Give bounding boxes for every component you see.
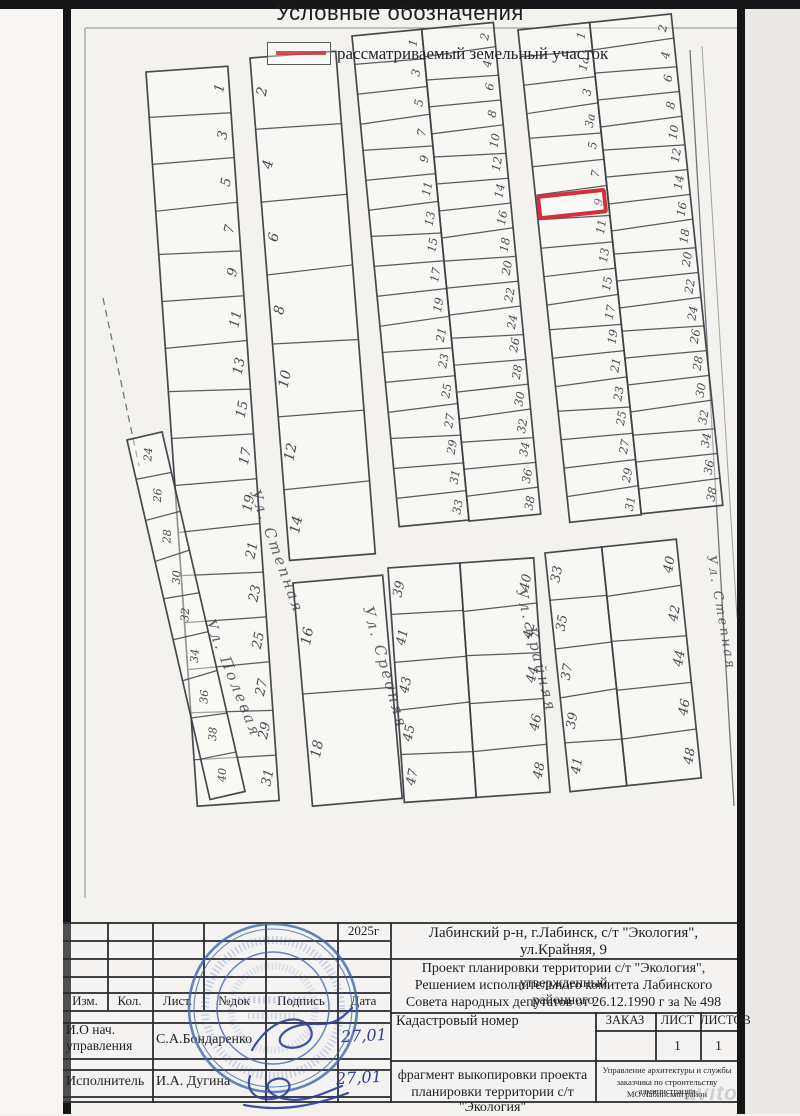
- plot-number: 35: [554, 614, 572, 633]
- sheets-value: 1: [700, 1039, 737, 1054]
- plot-number: 46: [676, 698, 694, 718]
- plot-number: 25: [613, 410, 630, 428]
- cadastral-number-label: Кадастровый номер: [396, 1014, 519, 1030]
- plot-number: 48: [681, 747, 699, 767]
- plot-number: 15: [599, 275, 615, 292]
- plot-number: 19: [430, 296, 446, 313]
- photo-watermark: avito: [684, 1082, 738, 1106]
- plot-number: 26: [506, 336, 523, 354]
- plot-number: 3а: [582, 112, 598, 129]
- col-header-izm: Изм.: [63, 994, 107, 1008]
- plot-number: 23: [435, 352, 452, 370]
- plot-number: 32: [178, 607, 192, 622]
- title-block: 2025г Лабинский р-н, г.Лабинск, с/т "Эко…: [63, 922, 737, 1103]
- plot-number: 20: [679, 251, 696, 269]
- col-header-podpis: Подпись: [265, 994, 337, 1008]
- plot-number: 27: [616, 438, 633, 456]
- title-block-line: [152, 922, 154, 1103]
- plot-number: 27: [441, 412, 458, 431]
- sheet-value: 1: [655, 1039, 700, 1054]
- title-block-line: [63, 1010, 390, 1012]
- plot-number: 28: [509, 363, 526, 381]
- plot-number: 44: [671, 649, 689, 669]
- plot-number: 19: [604, 328, 620, 345]
- plot-strip: 33353739414042444648: [545, 539, 702, 792]
- org-line1: Управление архитектуры и службы: [597, 1066, 737, 1075]
- plot-number: 33: [548, 565, 566, 584]
- doc-title-line2: планировки территории с/т "Экология": [390, 1085, 595, 1116]
- plot-number: 20: [499, 259, 516, 277]
- plot-number: 29: [443, 438, 460, 456]
- plot-number: 36: [701, 459, 717, 476]
- plot-number: 31: [447, 468, 463, 485]
- plot-number: 30: [693, 382, 709, 399]
- plot-number: 11: [419, 180, 435, 197]
- plot-number: 30: [511, 390, 527, 407]
- plot-number: 13: [422, 210, 438, 227]
- plot-number: 22: [501, 286, 518, 304]
- plot-number: 11: [593, 218, 609, 235]
- col-header-ndok: №док: [203, 994, 265, 1008]
- sheet-header: ЛИСТ: [655, 1014, 700, 1028]
- signature2-date: 27,01: [336, 1068, 383, 1088]
- plot-number: 16: [673, 201, 689, 218]
- plot-number: 10: [665, 124, 681, 141]
- right-road-line-2: [702, 46, 737, 618]
- plot-number: 38: [206, 727, 220, 742]
- legend-item: рассматриваемый земельный участок: [267, 42, 608, 65]
- plot-strips: 1357911131517192123252729312468101214135…: [127, 14, 723, 806]
- plot-number: 39: [564, 711, 582, 730]
- plot-number: 24: [684, 305, 701, 323]
- plot-number: 26: [687, 328, 704, 346]
- title-block-line: [63, 976, 390, 978]
- scanned-cadastral-document: { "map": { "strips": [ {"id":"s1","cols"…: [0, 0, 800, 1114]
- order-header: ЗАКАЗ: [595, 1014, 655, 1028]
- plot-number: 38: [703, 486, 719, 503]
- plot-number: 28: [160, 529, 174, 545]
- plot-number: 12: [668, 147, 684, 164]
- title-block-line: [265, 922, 267, 1103]
- plot-number: 32: [695, 409, 711, 426]
- plot-number: 31: [622, 495, 638, 512]
- plot-number: 24: [504, 313, 521, 331]
- plot-number: 10: [487, 132, 503, 149]
- plot-number: 41: [568, 756, 586, 776]
- plot-number: 14: [671, 174, 687, 191]
- col-header-kol: Кол.: [107, 994, 152, 1008]
- plot-number: 12: [489, 155, 505, 172]
- title-block-line: [63, 1058, 390, 1060]
- plot-number: 18: [497, 236, 513, 253]
- signer1-name: С.А.Бондаренко: [156, 1032, 252, 1047]
- col-header-data: Дата: [337, 994, 390, 1008]
- legend-title: Условные обозначения: [0, 0, 800, 26]
- role1-line1: И.О нач.: [66, 1023, 115, 1038]
- sheets-header: ЛИСТОВ: [700, 1014, 737, 1028]
- plot-strip: 1357911131517192123252729313324681012141…: [352, 22, 541, 527]
- title-block-line: [63, 1096, 390, 1098]
- highlighted-plot-box: [538, 190, 606, 218]
- plot-number: 21: [433, 326, 450, 344]
- strip-outline: [250, 51, 375, 560]
- plot-number: 42: [666, 604, 684, 624]
- title-block-line: [63, 940, 390, 942]
- street-label: Ул. Степная: [703, 554, 738, 672]
- plot-number: 14: [491, 182, 507, 199]
- role2-label: Исполнитель: [66, 1074, 144, 1089]
- title-block-line: [63, 922, 737, 924]
- plot-number: 18: [308, 739, 327, 760]
- plot-number: 24: [141, 447, 155, 463]
- plot-number: 16: [494, 209, 510, 226]
- plot-number: 26: [151, 488, 165, 504]
- plot-number: 25: [438, 382, 455, 400]
- plot-number: 36: [197, 689, 211, 704]
- plot-number: 28: [690, 355, 707, 373]
- plot-strip: 2468101214: [250, 51, 375, 560]
- plot-map: 1357911131517192123252729312468101214135…: [0, 0, 800, 900]
- col-header-list: Лист.: [152, 994, 203, 1008]
- plot-number: 33: [449, 498, 465, 515]
- doc-title-line1: фрагмент выкопировки проекта: [390, 1068, 595, 1083]
- plot-number: 36: [519, 468, 535, 485]
- signature1-date: 27,01: [341, 1026, 388, 1046]
- signer2-name: И.А. Дугина: [156, 1074, 230, 1089]
- plot-number: 21: [607, 357, 624, 375]
- plot-number: 32: [514, 417, 530, 434]
- title-block-line: [390, 1060, 737, 1062]
- plot-number: 13: [596, 247, 612, 264]
- address-line-2: ул.Крайняя, 9: [390, 942, 737, 959]
- plot-number: 15: [424, 236, 440, 253]
- plot-number: 29: [619, 467, 636, 485]
- plot-number: 22: [681, 278, 698, 296]
- role1-line2: управления: [66, 1039, 132, 1054]
- legend: Условные обозначения рассматриваемый зем…: [0, 0, 800, 26]
- plot-number: 40: [215, 768, 229, 784]
- plot-number: 18: [676, 228, 692, 245]
- plot-number: 37: [559, 662, 577, 682]
- plot-number: 30: [170, 570, 184, 585]
- plot-number: 16: [298, 626, 317, 647]
- plot-number: 34: [516, 441, 532, 458]
- plot-number: 23: [610, 385, 627, 403]
- highlighted-plot-swatch-icon: [267, 42, 331, 65]
- year-cell: 2025г: [337, 924, 390, 938]
- plot-number: 34: [698, 432, 714, 449]
- project-line-3: Совета народных депутатов от 26.12.1990 …: [390, 995, 737, 1010]
- legend-item-label: рассматриваемый земельный участок: [337, 44, 608, 64]
- address-line-1: Лабинский р-н, г.Лабинск, с/т "Экология"…: [390, 925, 737, 942]
- plot-number: 38: [521, 494, 537, 511]
- title-block-line: [595, 1030, 737, 1032]
- plot-number: 40: [661, 555, 679, 575]
- plot-number: 34: [188, 648, 202, 663]
